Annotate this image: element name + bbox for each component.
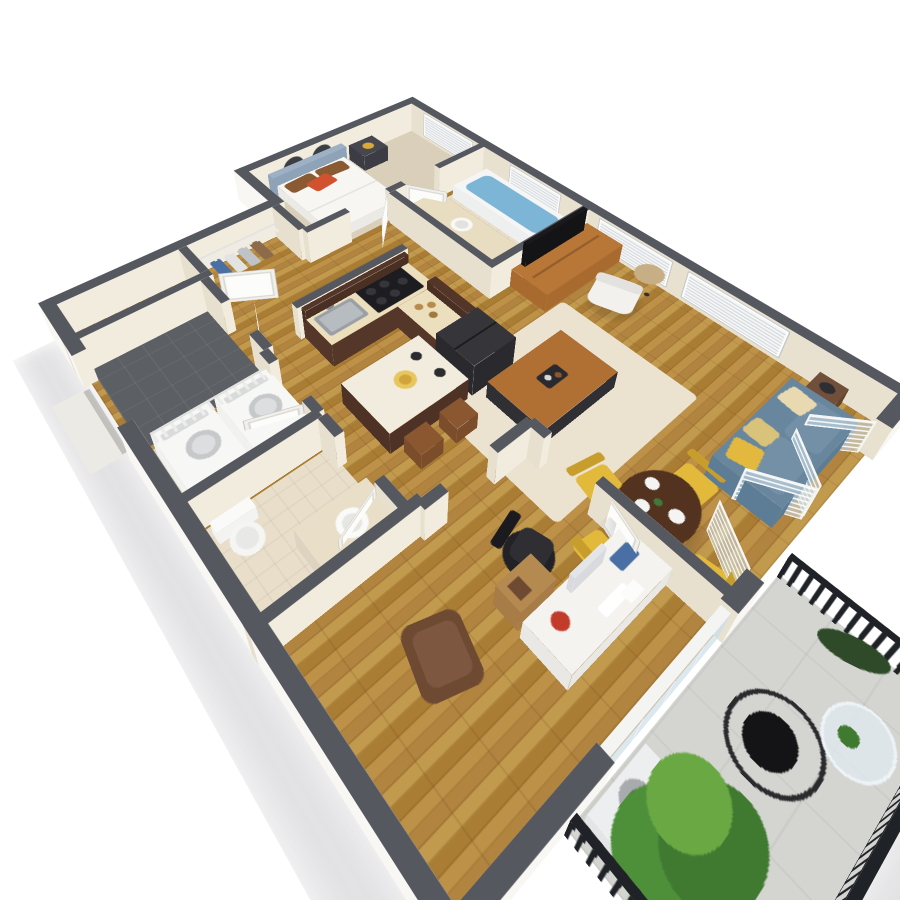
nightstand-top-decal [360,141,376,150]
refrigerator-top-decal [454,321,497,350]
office-desk-top-decal [546,607,574,636]
office-shelf-unit-top-decal [507,576,532,601]
kitchen-counter-east-top-decal [427,310,439,319]
kitchen-counter-east-top-decal [413,303,425,312]
kitchen-island-top-decal [432,366,448,379]
floor-plan-3d-render [0,0,900,900]
sofa-side-table-top-decal [816,380,838,397]
kitchen-island-top-decal [408,350,424,362]
kitchen-counter-east-top-decal [425,300,437,309]
coffee-table-top-decal [535,363,569,389]
apartment-floor-plan [0,125,900,900]
